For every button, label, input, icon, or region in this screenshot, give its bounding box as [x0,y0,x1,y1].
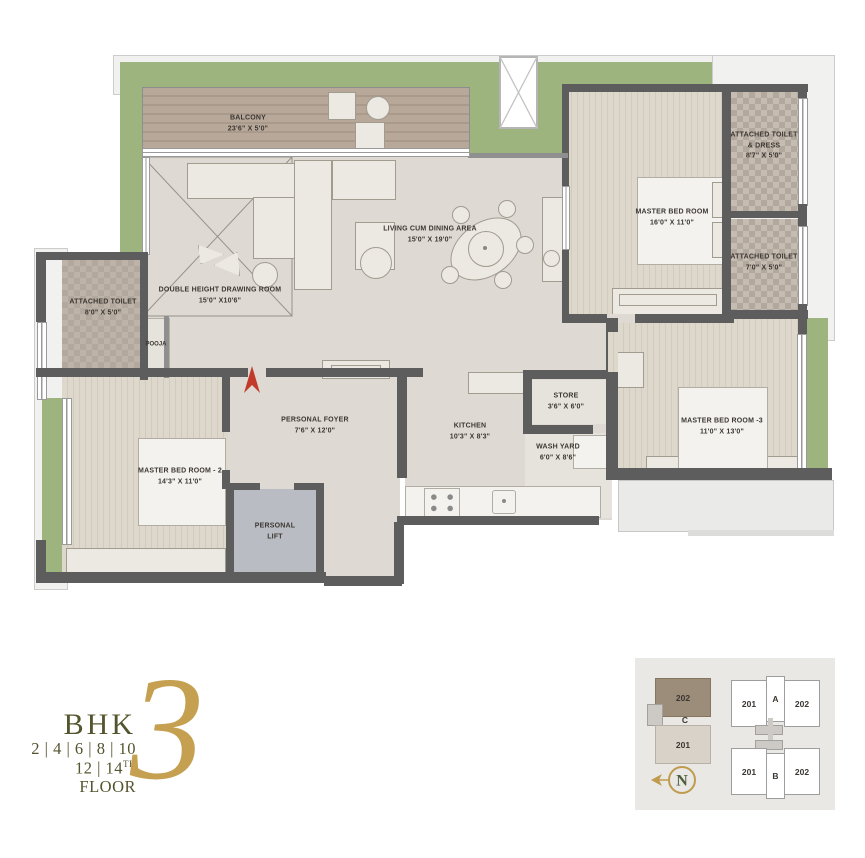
keyplan-unit-c-201: 201 [655,725,711,764]
logo-floors-line1: 2 | 4 | 6 | 8 | 10 [24,740,136,759]
floor-plan-page: BALCONY23'6" X 5'0" DOUBLE HEIGHT DRAWIN… [0,0,865,858]
keyplan-tower-c-label: C [682,715,688,725]
keyplan: 202 C 201 201 A 202 201 B 202 N [635,658,835,810]
keyplan-tower-b-label: B [766,753,785,799]
logo-floors-line2-suffix: FLOOR [79,777,136,796]
entry-arrow-icon [0,0,865,640]
north-letter: N [676,773,688,790]
keyplan-unit-a-201: 201 [731,680,767,727]
keyplan-unit-b-202: 202 [784,748,820,795]
logo-block: BHK 2 | 4 | 6 | 8 | 10 12 | 14TH FLOOR [24,710,136,797]
logo-bhk: BHK [24,710,136,740]
keyplan-unit-a-202: 202 [784,680,820,727]
logo-number-3: 3 [130,655,204,803]
keyplan-connector-c [647,704,663,726]
keyplan-unit-c-202: 202 [655,678,711,717]
logo-floors-line2: 12 | 14TH FLOOR [24,759,136,797]
logo-floors-line2-prefix: 12 | 14 [75,758,123,777]
keyplan-unit-b-201: 201 [731,748,767,795]
keyplan-tower-a-label: A [766,676,785,722]
north-arrow-icon: N [649,762,711,798]
